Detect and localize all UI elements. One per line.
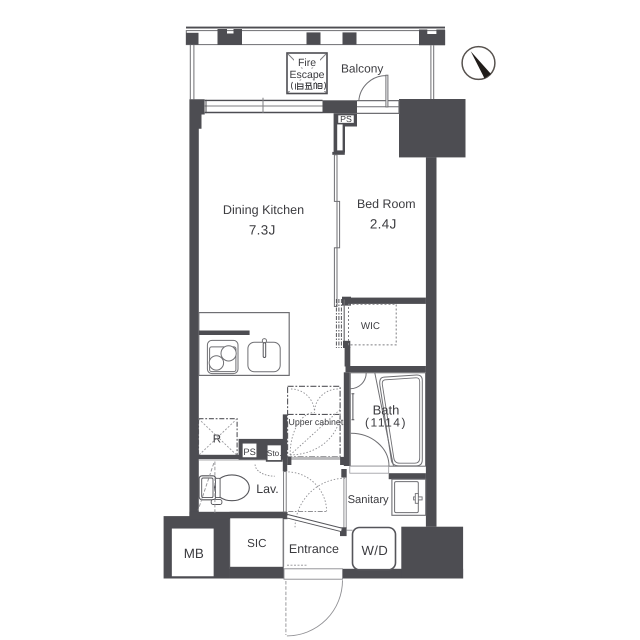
svg-text:PS: PS bbox=[340, 114, 352, 124]
svg-text:2.4J: 2.4J bbox=[370, 216, 397, 231]
svg-text:Escape: Escape bbox=[289, 69, 324, 81]
svg-text:Sto.: Sto. bbox=[267, 449, 282, 458]
svg-text:Sanitary: Sanitary bbox=[348, 494, 389, 506]
svg-text:Entrance: Entrance bbox=[289, 542, 339, 556]
svg-text:Dining Kitchen: Dining Kitchen bbox=[223, 203, 304, 217]
svg-text:Bed Room: Bed Room bbox=[357, 197, 416, 211]
svg-text:W/D: W/D bbox=[362, 543, 389, 558]
svg-text:SIC: SIC bbox=[247, 537, 266, 550]
svg-text:Balcony: Balcony bbox=[341, 62, 383, 76]
svg-text:Fire: Fire bbox=[298, 57, 316, 69]
svg-text:7.3J: 7.3J bbox=[249, 223, 276, 238]
svg-text:PS: PS bbox=[243, 447, 255, 457]
svg-text:MB: MB bbox=[184, 546, 204, 561]
svg-text:R: R bbox=[213, 434, 221, 446]
svg-text:Lav.: Lav. bbox=[256, 482, 279, 496]
svg-text:(1114): (1114) bbox=[365, 416, 407, 430]
svg-text:WIC: WIC bbox=[361, 321, 380, 332]
